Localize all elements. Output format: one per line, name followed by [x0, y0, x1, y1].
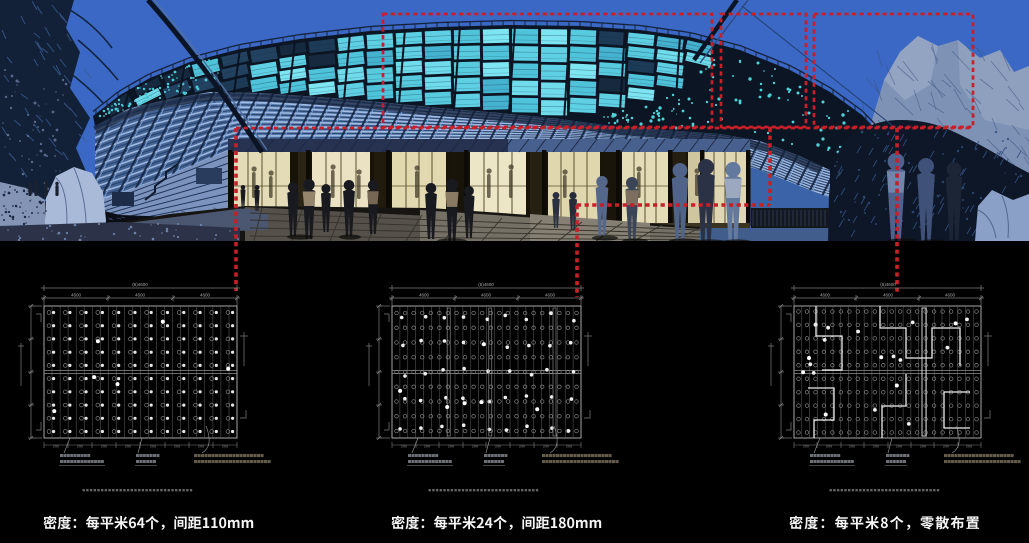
svg-text:200: 200	[125, 445, 131, 449]
svg-text:200: 200	[896, 445, 902, 449]
svg-text:200: 200	[966, 445, 972, 449]
svg-text:200: 200	[101, 445, 107, 449]
svg-text:200: 200	[53, 445, 59, 449]
svg-text:200: 200	[424, 445, 430, 449]
svg-text:200: 200	[174, 445, 180, 449]
svg-text:4600: 4600	[135, 293, 146, 298]
svg-text:200: 200	[77, 445, 83, 449]
svg-text:200: 200	[826, 445, 832, 449]
svg-text:(6)4600: (6)4600	[880, 282, 896, 287]
svg-text:200: 200	[849, 445, 855, 449]
svg-text:200: 200	[495, 445, 501, 449]
svg-text:(6)4600: (6)4600	[478, 282, 494, 287]
svg-text:4600: 4600	[481, 293, 492, 298]
svg-text:4600: 4600	[820, 293, 831, 298]
svg-text:4600: 4600	[71, 293, 82, 298]
svg-text:200: 200	[803, 445, 809, 449]
svg-text:(6)4600: (6)4600	[132, 282, 148, 287]
svg-text:200: 200	[566, 445, 572, 449]
svg-text:200: 200	[873, 445, 879, 449]
svg-text:200: 200	[198, 445, 204, 449]
svg-text:200: 200	[519, 445, 525, 449]
svg-text:200: 200	[472, 445, 478, 449]
svg-text:4600: 4600	[945, 293, 956, 298]
svg-text:4600: 4600	[200, 293, 211, 298]
svg-text:4600: 4600	[545, 293, 556, 298]
svg-text:200: 200	[150, 445, 156, 449]
svg-text:200: 200	[943, 445, 949, 449]
svg-text:200: 200	[920, 445, 926, 449]
svg-text:4600: 4600	[419, 293, 430, 298]
svg-text:200: 200	[401, 445, 407, 449]
svg-text:4600: 4600	[883, 293, 894, 298]
svg-text:200: 200	[222, 445, 228, 449]
svg-text:200: 200	[543, 445, 549, 449]
svg-text:200: 200	[448, 445, 454, 449]
